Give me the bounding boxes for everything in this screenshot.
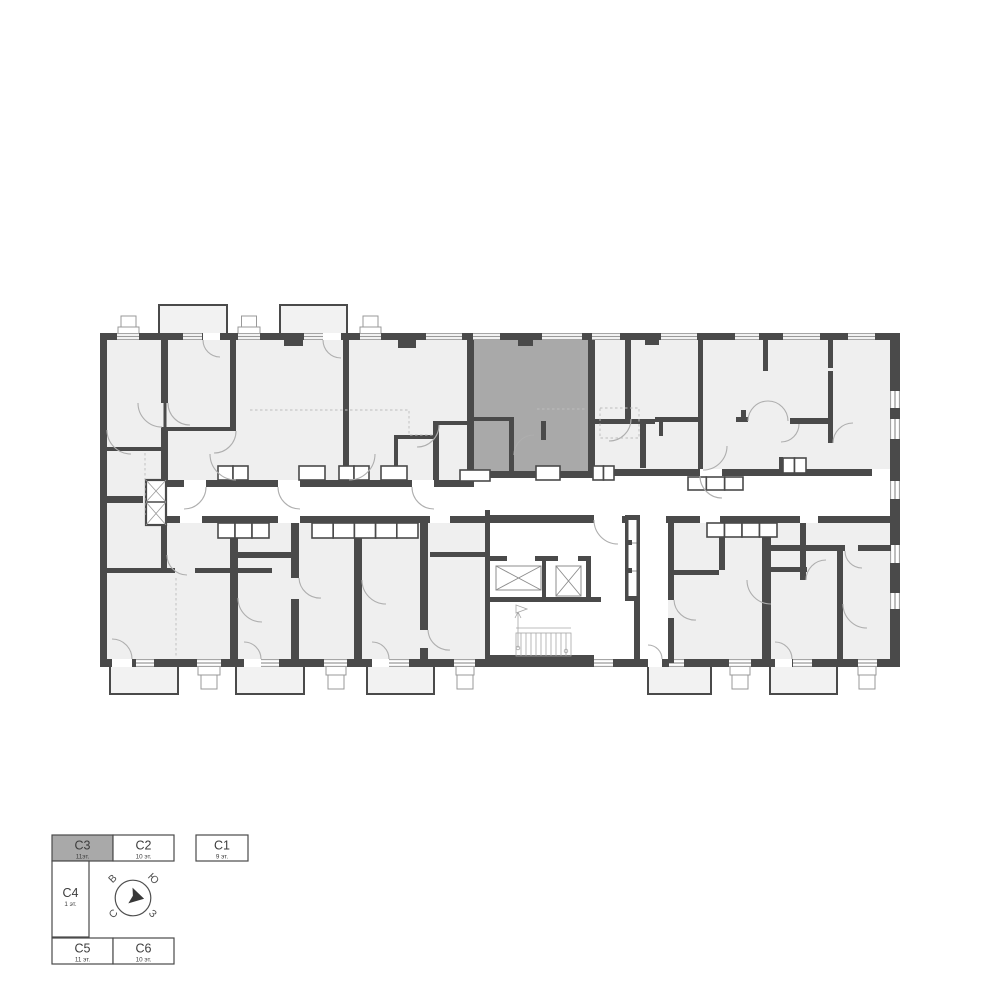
svg-text:С4: С4	[63, 886, 79, 900]
svg-text:С2: С2	[136, 839, 152, 853]
svg-text:С1: С1	[214, 839, 230, 853]
svg-text:1 эт.: 1 эт.	[64, 901, 77, 908]
svg-text:11 эт.: 11 эт.	[75, 957, 91, 964]
svg-text:С3: С3	[75, 839, 91, 853]
svg-text:10 эт.: 10 эт.	[136, 854, 152, 861]
svg-text:9 эт.: 9 эт.	[216, 854, 229, 861]
svg-text:11эт.: 11эт.	[76, 854, 90, 861]
svg-text:С6: С6	[136, 942, 152, 956]
svg-text:10 эт.: 10 эт.	[136, 957, 152, 964]
svg-text:С5: С5	[75, 942, 91, 956]
